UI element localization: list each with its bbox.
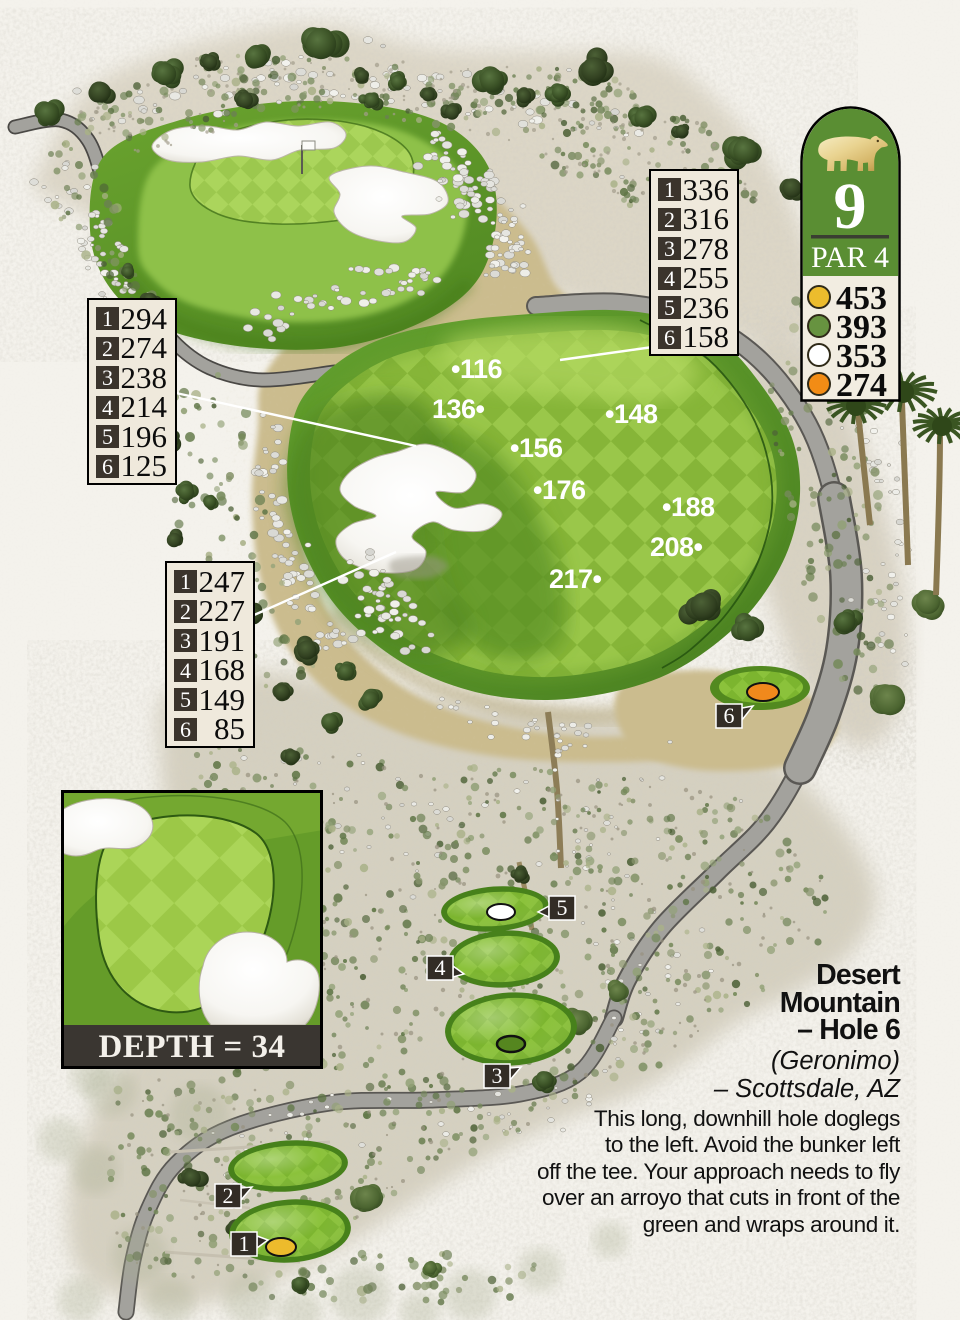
svg-text:9: 9	[834, 170, 867, 243]
svg-text:5: 5	[557, 895, 568, 920]
svg-text:274: 274	[836, 367, 887, 402]
svg-text:6: 6	[724, 703, 735, 728]
svg-text:2: 2	[223, 1183, 234, 1208]
svg-text:PAR 4: PAR 4	[811, 241, 889, 274]
svg-text:1: 1	[239, 1231, 250, 1256]
svg-text:4: 4	[435, 955, 446, 980]
svg-text:DEPTH = 34: DEPTH = 34	[99, 1029, 286, 1065]
